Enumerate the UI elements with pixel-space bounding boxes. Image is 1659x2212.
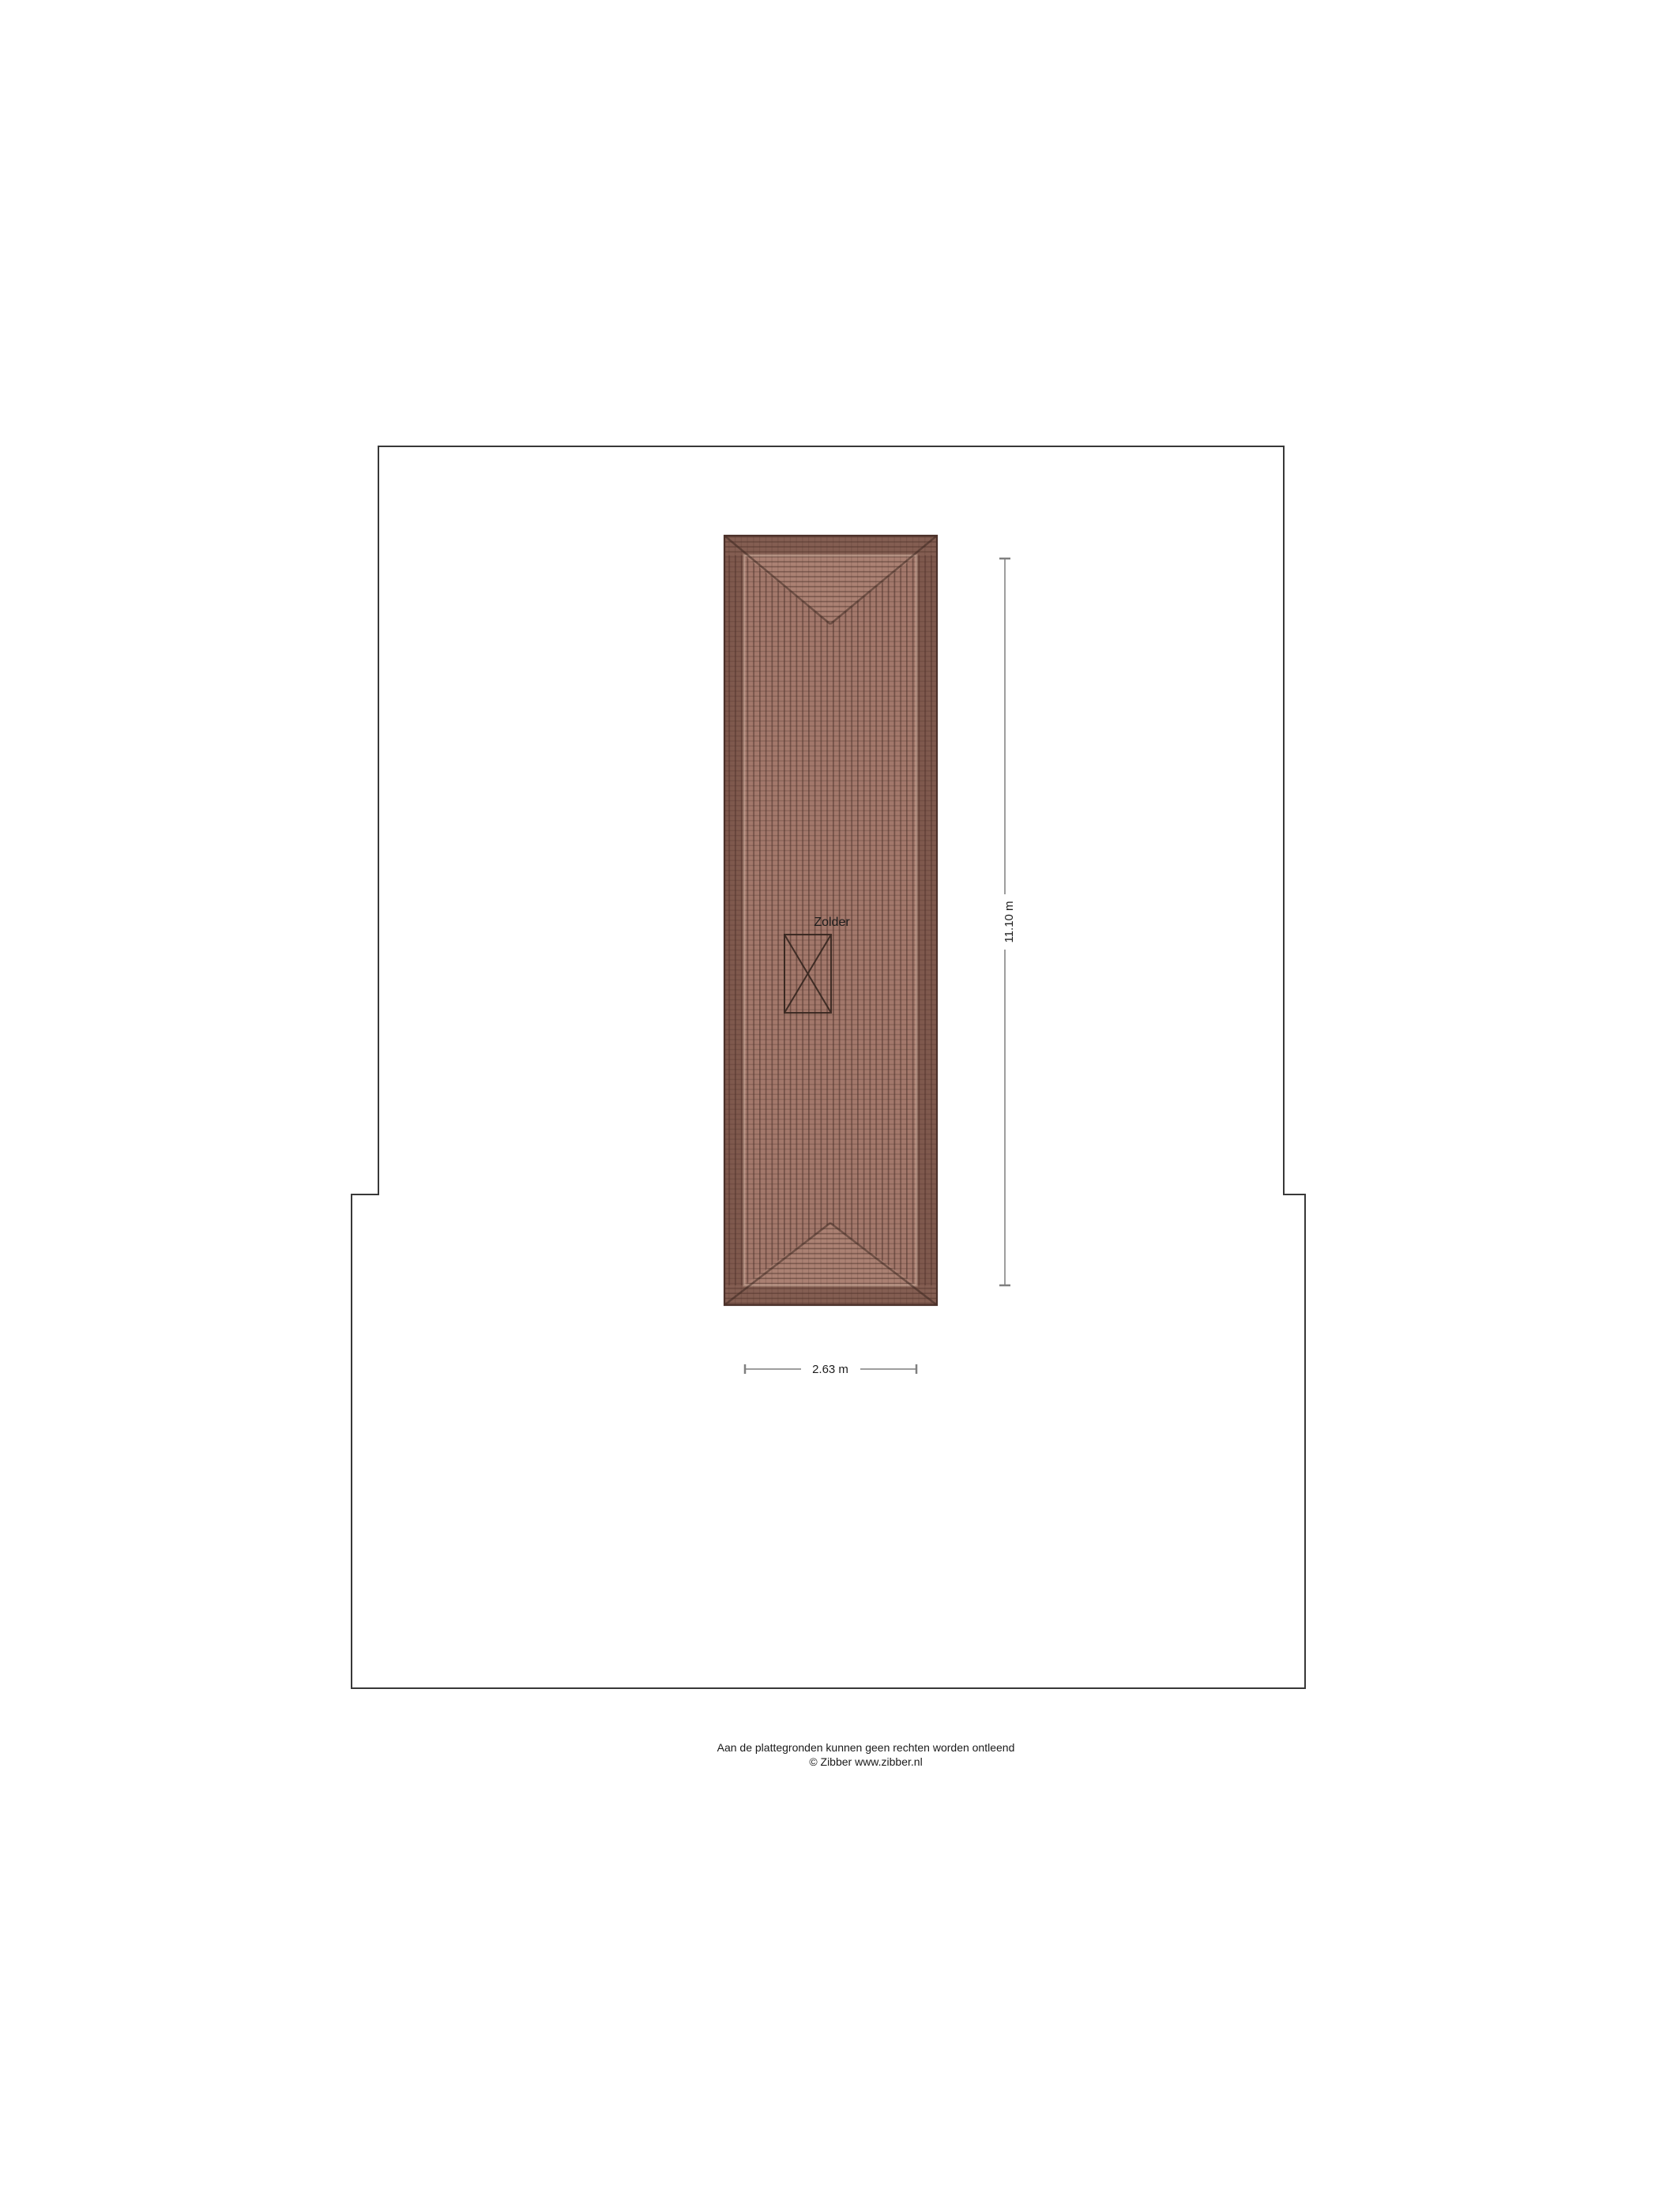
width-dimension-label: 2.63 m: [812, 1363, 848, 1376]
footer-disclaimer: Aan de plattegronden kunnen geen rechten…: [717, 1740, 1015, 1755]
width-dimension: 2.63 m: [745, 1363, 916, 1376]
floorplan-canvas: Zolder 11.10 m 2.63 m: [0, 0, 1659, 2212]
footer-copyright: © Zibber www.zibber.nl: [717, 1755, 1015, 1769]
height-dimension-label: 11.10 m: [1003, 901, 1016, 942]
footer: Aan de plattegronden kunnen geen rechten…: [717, 1740, 1015, 1769]
room-label: Zolder: [814, 916, 850, 929]
height-dimension: 11.10 m: [999, 559, 1016, 1285]
